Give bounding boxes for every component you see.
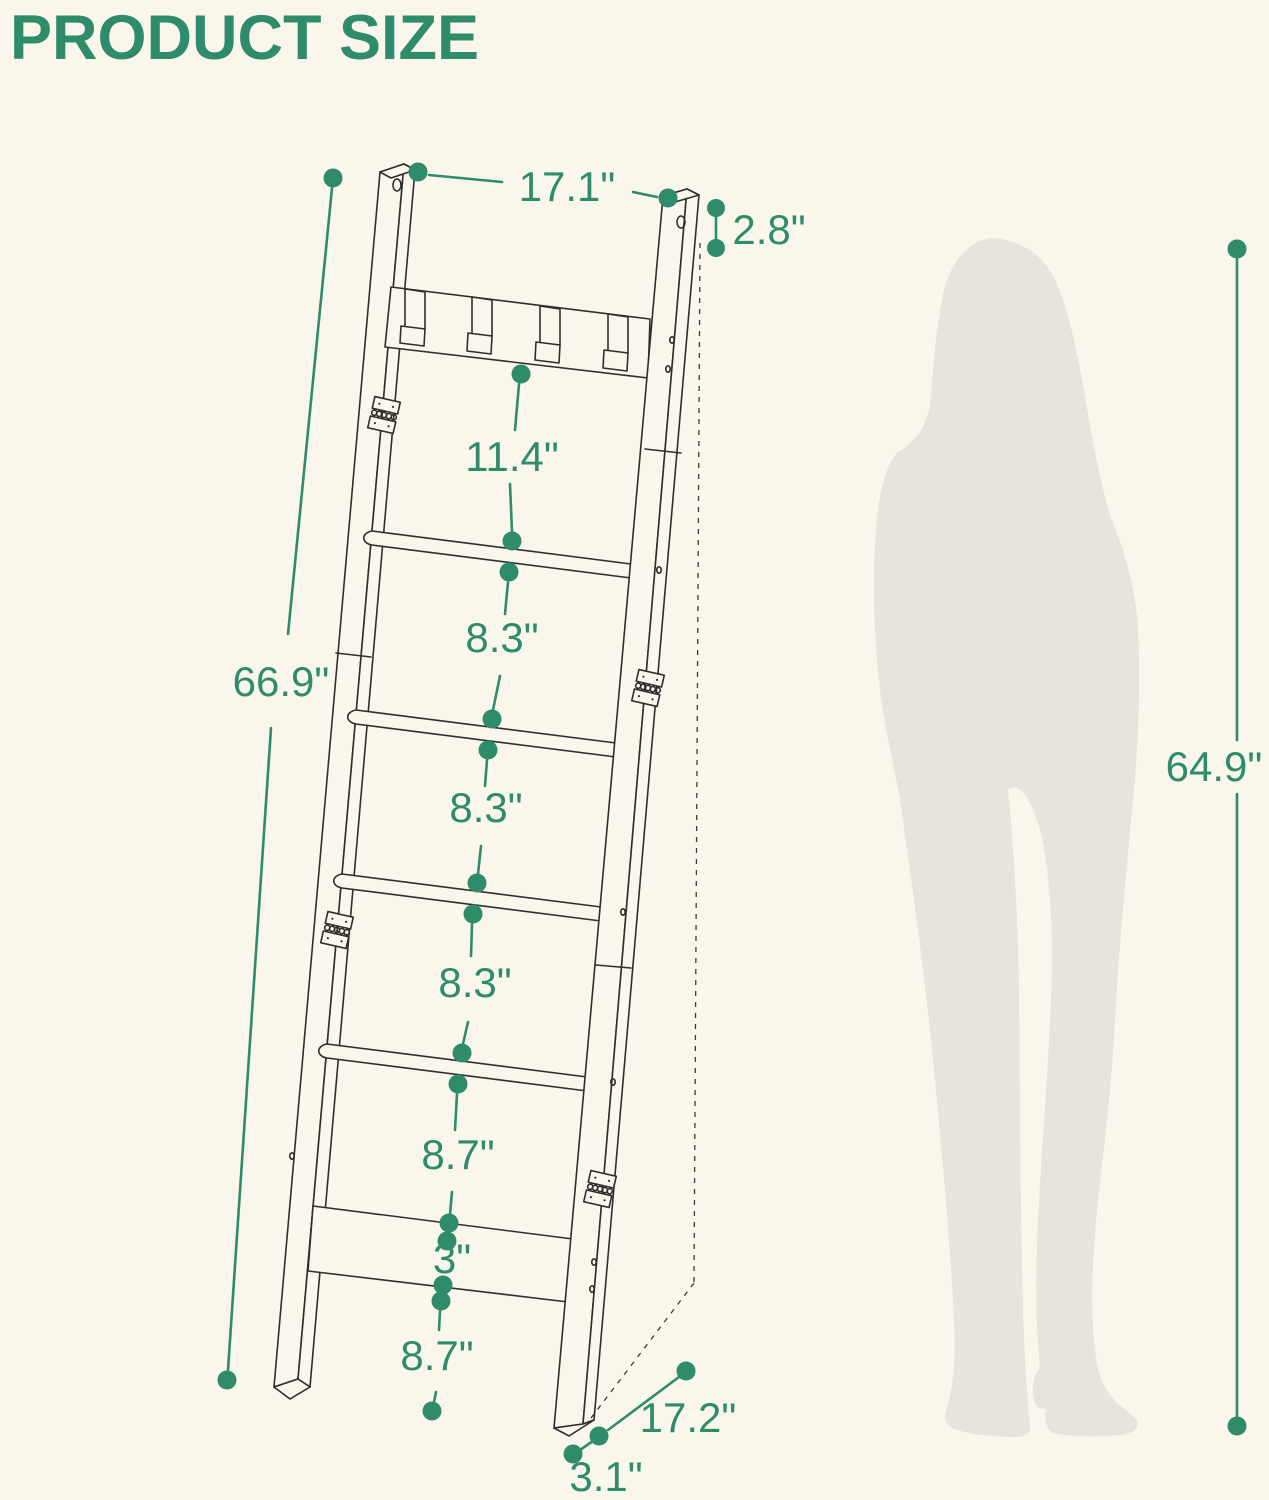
hook-board	[385, 287, 650, 378]
rung-1	[364, 531, 631, 578]
hook-knob-1	[400, 326, 425, 346]
dim-top-end-offset: 2.8"	[707, 199, 806, 257]
dim-label-base-depth: 17.2"	[640, 1394, 737, 1441]
dim-label-rung-gap-3: 8.3"	[438, 959, 511, 1006]
dim-standing-height: 64.9"	[1166, 240, 1263, 1436]
dim-label-foot-depth: 3.1"	[569, 1453, 642, 1500]
hook-knob-2	[467, 333, 492, 354]
human-silhouette	[874, 238, 1139, 1437]
dim-base-depth: 17.2"	[590, 1362, 737, 1446]
hook-knob-3	[535, 342, 560, 363]
dim-foot-depth: 3.1"	[564, 1441, 643, 1500]
dim-label-rung-gap-1: 8.3"	[465, 614, 538, 661]
dim-label-rung-gap-2: 8.3"	[449, 784, 522, 831]
hook-plate-1	[405, 289, 425, 329]
vertical-projection-line	[694, 243, 700, 1283]
dim-label-top-width: 17.1"	[519, 163, 616, 210]
hook-plate-2	[472, 297, 492, 336]
dim-label-ladder-length: 66.9"	[233, 658, 330, 705]
ladder-dimension-diagram: 17.1" 2.8" 11.4" 8.3"	[0, 0, 1269, 1500]
hook-plate-3	[540, 306, 560, 345]
dim-label-top-end-offset: 2.8"	[732, 206, 805, 253]
dim-label-bottom-clearance: 8.7"	[400, 1332, 473, 1379]
product-size-diagram-page: PRODUCT SIZE	[0, 0, 1269, 1500]
dim-label-shelf-thickness: 3"	[433, 1235, 471, 1282]
hook-plate-4	[608, 314, 628, 353]
dim-label-hooks-to-first-rung: 11.4"	[465, 433, 559, 480]
dim-top-width: 17.1"	[409, 163, 678, 211]
dim-label-rung-gap-4: 8.7"	[421, 1131, 494, 1178]
silhouette-shape	[874, 238, 1139, 1437]
hook-knob-4	[603, 350, 628, 371]
dim-label-standing-height: 64.9"	[1166, 743, 1263, 790]
